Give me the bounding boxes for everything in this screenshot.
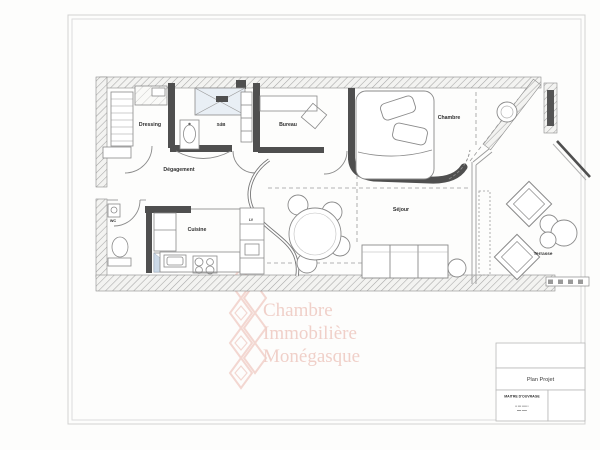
room-label-degagement: Dégagement [163,167,194,173]
terrace-tables [540,215,577,248]
room-label-chambre: Chambre [438,115,461,121]
room-label-sejour: Séjour [393,207,409,213]
room-label-wc: WC [110,219,117,223]
dining-table [288,195,350,273]
watermark-line-3: Monégasque [263,346,360,367]
kitchen-counter [154,213,240,273]
wall-column-dark [547,90,554,126]
bedside-table [497,102,517,122]
room-label-sdb: SdB [217,122,226,127]
floor-plan-canvas: Chambre Immobilière Monégasque [0,0,600,450]
title-block: Plan Projet MAITRE D'OUVRAGE ▪▪ ▪▪▪ ▪▪▪▪… [496,343,585,421]
sofa [362,245,448,278]
title-block-plan-title: Plan Projet [527,377,555,383]
room-label-cuisine: Cuisine [188,227,207,233]
washbasin [180,120,199,149]
toilet [108,204,131,266]
watermark-line-1: Chambre [263,300,333,321]
bed [356,91,434,179]
terrace-edge [553,141,590,180]
room-label-dressing: Dressing [139,122,161,128]
room-label-terrasse: Terrasse [534,251,553,256]
watermark-line-2: Immobilière [263,323,357,344]
title-block-owner-label: MAITRE D'OUVRAGE [504,395,540,399]
ottoman [448,259,466,277]
title-block-owner-line-2: ▪▪▪▪ ▪▪▪▪▪ [517,409,527,413]
title-block-owner-line-1: ▪▪ ▪▪▪ ▪▪▪▪▪ ▪ [515,404,528,408]
scale-bar-icon [546,277,589,286]
scanned-floor-plan-page: Chambre Immobilière Monégasque [0,0,600,450]
room-label-bureau: Bureau [279,122,297,128]
shower [195,88,245,115]
